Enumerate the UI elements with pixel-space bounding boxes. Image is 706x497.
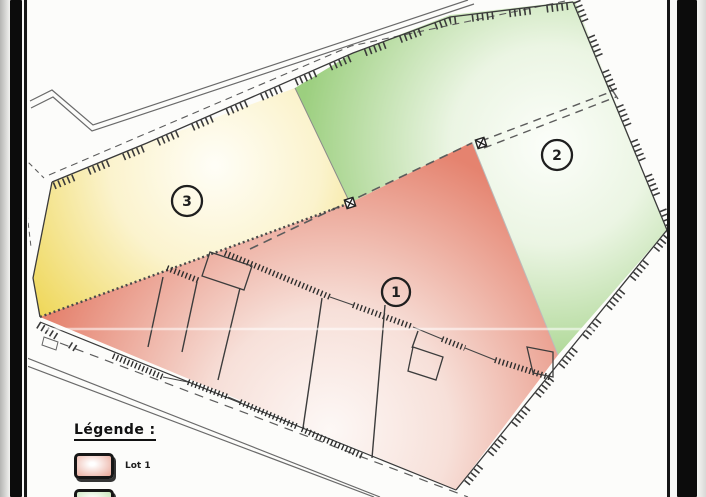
frame-right-line [667, 0, 670, 497]
frame-left-bar [10, 0, 22, 497]
annex-step [42, 337, 58, 350]
frame-right-bar [677, 0, 697, 497]
scanned-site-plan-page: 1 2 3 Légende : Lot 1 [0, 0, 706, 497]
plan-paper: 1 2 3 Légende : Lot 1 [28, 0, 667, 497]
legend-swatch-lot2 [74, 489, 114, 497]
legend: Légende : Lot 1 [74, 419, 156, 497]
opening-4 [163, 377, 188, 382]
legend-item-lot2 [74, 489, 156, 497]
frame-left-line [24, 0, 27, 497]
page-edge-shadow-right [697, 0, 706, 497]
legend-title: Légende : [74, 422, 156, 441]
lot-3-number: 3 [182, 194, 192, 210]
boundary-marker-icon [475, 137, 486, 148]
boundary-marker-icon [344, 197, 355, 208]
lot-2-number: 2 [552, 148, 562, 164]
legend-swatch-lot1 [74, 453, 114, 479]
dashed-left-edge [28, 196, 31, 247]
legend-item-lot1: Lot 1 [74, 453, 156, 479]
lot-1-number: 1 [391, 285, 401, 301]
legend-label-lot1: Lot 1 [125, 461, 151, 471]
dashed-nw-corner [28, 150, 44, 178]
page-edge-shadow-left [0, 0, 10, 497]
